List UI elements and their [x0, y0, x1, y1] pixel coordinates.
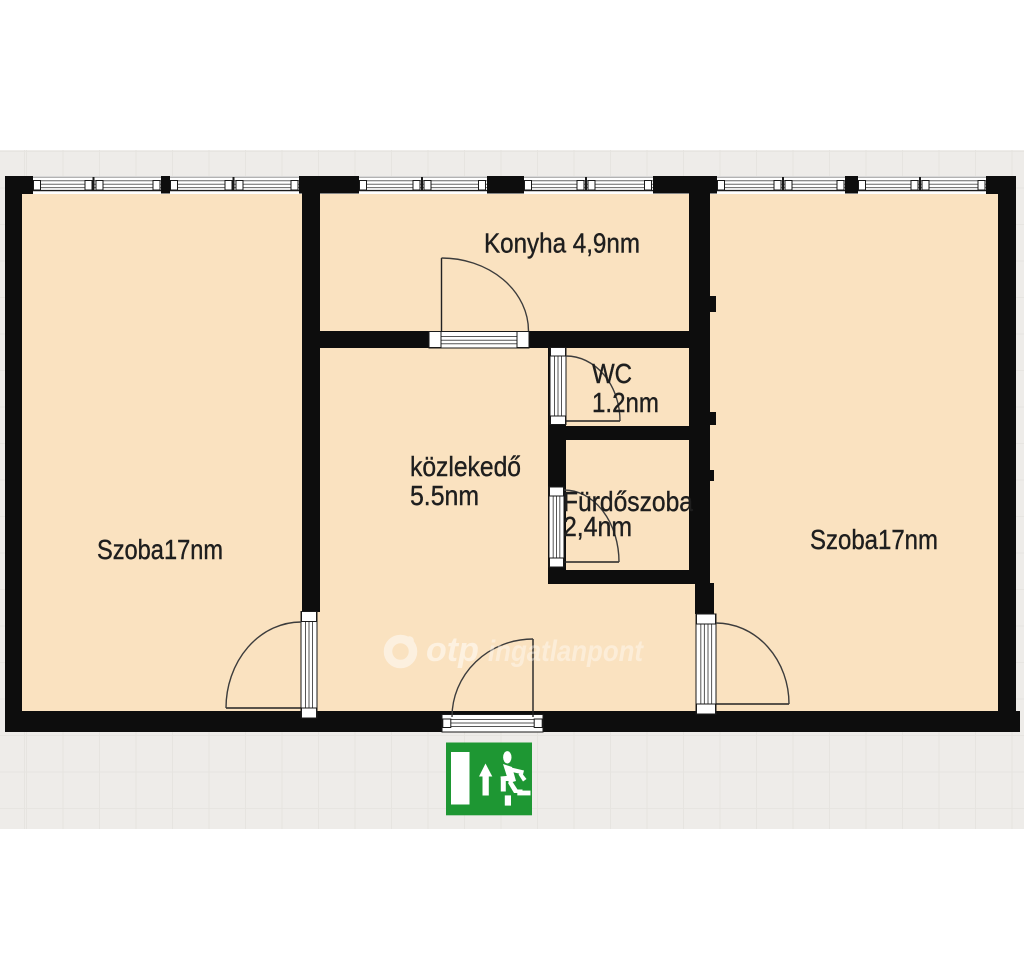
svg-text:otp: otp	[426, 631, 479, 669]
svg-text:5.5nm: 5.5nm	[410, 480, 479, 511]
svg-text:közlekedő: közlekedő	[410, 451, 521, 482]
svg-text:Szoba17nm: Szoba17nm	[810, 524, 938, 555]
svg-text:Szoba17nm: Szoba17nm	[97, 534, 223, 565]
svg-text:WC: WC	[592, 358, 632, 389]
svg-text:ingatlanpont: ingatlanpont	[488, 635, 645, 668]
svg-text:1.2nm: 1.2nm	[592, 387, 659, 418]
svg-text:Konyha 4,9nm: Konyha 4,9nm	[484, 228, 640, 259]
svg-text:2,4nm: 2,4nm	[563, 511, 632, 542]
